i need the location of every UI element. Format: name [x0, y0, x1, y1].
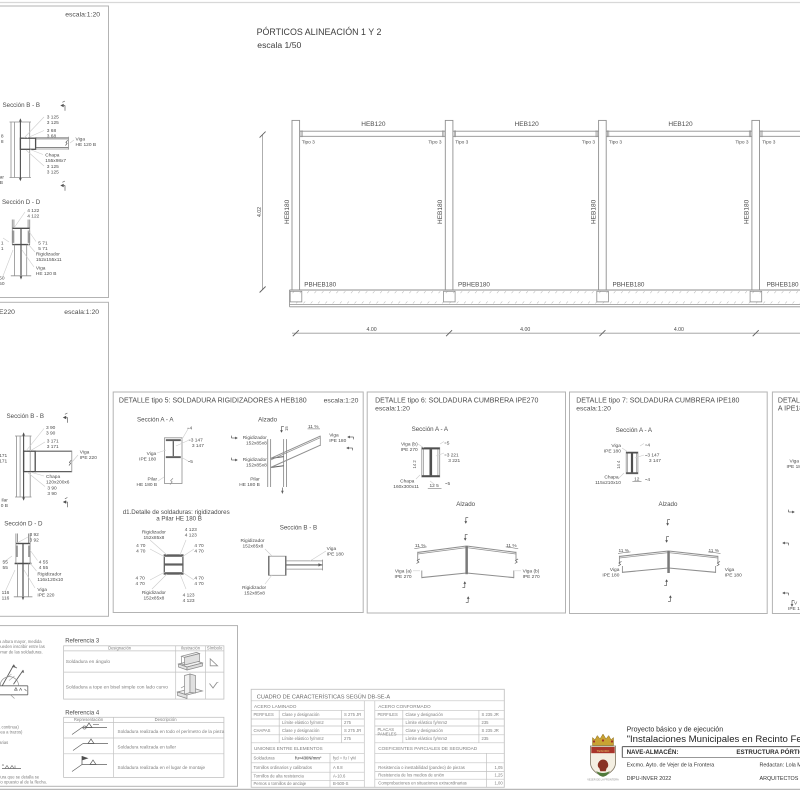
svg-text:Clase y designación: Clase y designación [406, 728, 444, 733]
svg-text:Viga: Viga [147, 451, 157, 457]
svg-text:HEB180: HEB180 [437, 199, 444, 224]
svg-text:Viga: Viga [610, 567, 620, 573]
svg-text:PBHEB180: PBHEB180 [458, 282, 490, 289]
svg-text:HEB120: HEB120 [668, 121, 693, 128]
svg-text:HEB180: HEB180 [284, 199, 291, 224]
svg-text:4 122: 4 122 [27, 208, 39, 214]
svg-text:S 275 JR: S 275 JR [344, 728, 361, 733]
svg-text:COEFICIENTES PARCIALES DE SEGU: COEFICIENTES PARCIALES DE SEGURIDAD [378, 746, 478, 751]
svg-text:HE 180 B: HE 180 B [137, 482, 158, 488]
svg-text:Sección A - A: Sección A - A [137, 416, 174, 423]
svg-text:4 55: 4 55 [39, 565, 49, 571]
svg-text:Tipo 3: Tipo 3 [302, 139, 315, 145]
svg-text:PBHEB180: PBHEB180 [304, 282, 336, 289]
svg-text:escala:1:20: escala:1:20 [375, 405, 410, 412]
svg-text:3 125: 3 125 [47, 115, 59, 121]
svg-text:116: 116 [2, 590, 10, 596]
svg-text:Rigidizador: Rigidizador [243, 435, 267, 441]
svg-text:PBHEB180: PBHEB180 [767, 282, 799, 289]
svg-text:Viga: Viga [76, 136, 86, 142]
svg-text:4: 4 [647, 442, 650, 448]
svg-text:171: 171 [0, 458, 8, 464]
svg-text:Chapa: Chapa [45, 153, 59, 159]
svg-text:PÓRTICOS ALINEACIÓN 1 Y 2: PÓRTICOS ALINEACIÓN 1 Y 2 [257, 27, 382, 37]
svg-text:S 235 JR: S 235 JR [482, 712, 499, 717]
svg-text:3 171: 3 171 [47, 444, 59, 450]
svg-text:IPE 270: IPE 270 [401, 447, 418, 453]
svg-text:8: 8 [1, 134, 4, 140]
svg-text:Viga: Viga [36, 266, 46, 272]
svg-text:3 68: 3 68 [47, 128, 57, 134]
svg-text:PERFILES: PERFILES [378, 712, 398, 717]
svg-text:Redactan: Lola Mar: Redactan: Lola Mar [760, 762, 800, 768]
svg-text:IPE 180: IPE 180 [725, 572, 742, 578]
svg-text:Tipo 3: Tipo 3 [609, 139, 622, 145]
svg-text:Sección D - D: Sección D - D [4, 521, 43, 528]
svg-text:ESTRUCTURA PÓRTICOS: ESTRUCTURA PÓRTICOS [736, 748, 800, 756]
svg-text:Viga: Viga [37, 587, 47, 593]
svg-text:ACERO CONFORMADO: ACERO CONFORMADO [378, 704, 431, 709]
svg-text:IPE 270: IPE 270 [523, 574, 540, 580]
svg-text:escala 1/50: escala 1/50 [257, 40, 301, 50]
svg-text:DETALLE tipo 6: SOLDADURA CUMB: DETALLE tipo 6: SOLDADURA CUMBRERA IPE27… [375, 398, 538, 405]
svg-text:Tornillos de alta resistencia: Tornillos de alta resistencia [254, 774, 305, 779]
svg-text:Viga (b): Viga (b) [523, 568, 540, 574]
svg-text:120x200x6: 120x200x6 [46, 479, 70, 485]
svg-text:IPE 180: IPE 180 [327, 552, 344, 558]
svg-text:3 90: 3 90 [47, 491, 57, 497]
svg-text:Tipo 3: Tipo 3 [735, 139, 748, 145]
svg-text:Rigidizador: Rigidizador [142, 590, 166, 596]
svg-text:Referencia 3: Referencia 3 [65, 639, 100, 645]
svg-text:Tipo 3: Tipo 3 [455, 139, 468, 145]
svg-text:Límite elástico fy/mm2: Límite elástico fy/mm2 [406, 736, 448, 741]
svg-text:IPE 180: IPE 180 [139, 456, 156, 462]
svg-text:3 221: 3 221 [448, 458, 460, 464]
svg-text:DETALLE tipo 7: SOLDADURA CUMB: DETALLE tipo 7: SOLDADURA CUMBRERA IPE18… [576, 398, 739, 405]
svg-text:Designación: Designación [108, 646, 132, 651]
svg-text:275: 275 [344, 720, 352, 725]
svg-text:Sección B - B: Sección B - B [280, 525, 318, 532]
svg-text:escala:1:20: escala:1:20 [324, 398, 359, 405]
svg-text:Soldadura realizada en todo el: Soldadura realizada en todo el perímetro… [118, 729, 225, 734]
svg-text:A 8.8: A 8.8 [333, 765, 343, 770]
svg-text:Soldaduras: Soldaduras [254, 756, 275, 761]
svg-text:3 147: 3 147 [649, 458, 661, 464]
svg-text:Tipo 3: Tipo 3 [762, 139, 775, 145]
svg-text:50: 50 [0, 276, 5, 282]
svg-text:A IPE18: A IPE18 [778, 405, 800, 412]
svg-text:Tipo 3: Tipo 3 [582, 139, 595, 145]
svg-text:Representación: Representación [74, 717, 104, 722]
svg-text:3 125: 3 125 [47, 120, 59, 126]
svg-text:IPE 220: IPE 220 [80, 455, 97, 461]
svg-text:HE 180 B: HE 180 B [239, 482, 260, 488]
svg-text:PBHEB180: PBHEB180 [613, 282, 645, 289]
svg-text:1,05: 1,05 [495, 765, 504, 770]
svg-text:3 90: 3 90 [46, 425, 56, 431]
svg-text:4 55: 4 55 [39, 560, 49, 566]
svg-text:Pilar: Pilar [147, 477, 157, 483]
svg-text:155x98x7: 155x98x7 [45, 158, 66, 164]
svg-text:Ilustración: Ilustración [181, 646, 201, 651]
svg-text:escala:1:20: escala:1:20 [65, 12, 100, 19]
svg-text:a Pilar HE 180 B: a Pilar HE 180 B [156, 515, 202, 522]
svg-text:1,00: 1,00 [495, 781, 504, 786]
svg-text:do opuesto al de la flecha.: do opuesto al de la flecha. [0, 780, 47, 785]
svg-text:Símbolo: Símbolo [207, 646, 223, 651]
svg-text:152x85x8: 152x85x8 [246, 440, 267, 446]
svg-text:fyd = fu / γM: fyd = fu / γM [333, 756, 356, 761]
svg-text:Pernos o tornillos de anclaje: Pernos o tornillos de anclaje [254, 781, 307, 786]
svg-text:escala:1:20: escala:1:20 [64, 309, 99, 316]
svg-text:PANELES: PANELES [378, 732, 397, 737]
svg-text:ar: ar [0, 175, 4, 181]
svg-text:HEB120: HEB120 [361, 121, 386, 128]
svg-text:escala:1:20: escala:1:20 [576, 405, 611, 412]
svg-text:Chapa: Chapa [400, 479, 414, 485]
svg-text:5 71: 5 71 [38, 246, 48, 252]
svg-text:4 70: 4 70 [194, 543, 204, 549]
svg-text:B-500-S: B-500-S [333, 781, 349, 786]
svg-text:1: 1 [1, 246, 4, 252]
svg-text:VEJER DE LA FRONTERA: VEJER DE LA FRONTERA [587, 778, 619, 782]
svg-text:Rigidizador: Rigidizador [37, 572, 61, 578]
svg-text:Descripción: Descripción [155, 717, 178, 722]
svg-text:4: 4 [190, 426, 193, 432]
svg-text:3 92: 3 92 [30, 538, 40, 544]
svg-text:ARQUITECTOS: ARQUITECTOS [760, 776, 799, 782]
svg-text:ilar: ilar [1, 498, 8, 504]
svg-text:TESORO: TESORO [597, 749, 610, 753]
svg-text:14 2: 14 2 [412, 460, 417, 469]
svg-text:Rigidizador: Rigidizador [243, 457, 267, 463]
svg-text:Viga: Viga [790, 459, 800, 465]
svg-text:Pilar: Pilar [250, 477, 260, 483]
svg-text:235: 235 [482, 720, 490, 725]
svg-text:Rigidizador: Rigidizador [142, 529, 166, 535]
svg-text:DETALL: DETALL [778, 398, 800, 405]
svg-text:IPE 1: IPE 1 [788, 606, 800, 612]
svg-text:Soldadura a tope en bisel simp: Soldadura a tope en bisel simple con lad… [66, 685, 168, 691]
svg-text:NAVE-ALMACÉN:: NAVE-ALMACÉN: [627, 748, 679, 756]
svg-text:3 171: 3 171 [47, 438, 59, 444]
svg-text:IPE 180: IPE 180 [329, 438, 346, 444]
svg-text:4 123: 4 123 [185, 527, 197, 533]
svg-text:Resistencia de los medios de u: Resistencia de los medios de unión [378, 773, 445, 778]
svg-text:5: 5 [190, 459, 193, 465]
svg-text:Viga: Viga [327, 546, 337, 552]
svg-text:Clase y designación: Clase y designación [282, 728, 320, 733]
svg-text:Rigidizador: Rigidizador [242, 585, 266, 591]
svg-text:Límite elástico fy/mm2: Límite elástico fy/mm2 [282, 720, 324, 725]
svg-text:5: 5 [447, 440, 450, 446]
svg-text:HEB180: HEB180 [590, 199, 597, 224]
svg-text:Viga (b): Viga (b) [401, 442, 418, 448]
svg-text:Sección B - B: Sección B - B [3, 102, 41, 109]
svg-text:152x85x8: 152x85x8 [246, 463, 267, 469]
svg-text:Chapa: Chapa [604, 475, 618, 481]
svg-text:4 123: 4 123 [183, 598, 195, 604]
svg-text:Clase y designación: Clase y designación [406, 712, 444, 717]
svg-text:S 275 JR: S 275 JR [344, 712, 361, 717]
svg-text:HEB120: HEB120 [515, 121, 540, 128]
svg-text:115x210x10: 115x210x10 [595, 480, 621, 486]
svg-text:E220: E220 [0, 309, 15, 316]
svg-text:Sección B - B: Sección B - B [7, 413, 45, 420]
svg-text:Comprobaciones en situaciones: Comprobaciones en situaciones extraordin… [378, 781, 466, 786]
svg-text:Chapa: Chapa [46, 474, 60, 480]
svg-text:omar de las soldaduras.: omar de las soldaduras. [0, 649, 43, 654]
svg-text:14 4: 14 4 [616, 460, 621, 469]
svg-text:Tipo 3: Tipo 3 [428, 139, 441, 145]
svg-text:Rigidizador: Rigidizador [241, 538, 265, 544]
svg-text:"Instalaciones Municipales en: "Instalaciones Municipales en Recinto Fe… [627, 734, 800, 745]
svg-text:S 235 JR: S 235 JR [482, 728, 499, 733]
svg-text:3 221: 3 221 [447, 452, 459, 458]
svg-text:Sección D - D: Sección D - D [2, 199, 41, 206]
svg-text:nea a trazos): nea a trazos) [0, 730, 23, 735]
svg-text:3 125: 3 125 [47, 170, 59, 176]
svg-text:3 90: 3 90 [46, 430, 56, 436]
svg-text:UNIONES ENTRE ELEMENTOS: UNIONES ENTRE ELEMENTOS [254, 746, 323, 751]
svg-text:Resistencia o inestabilidad (p: Resistencia o inestabilidad (pandeo) de … [378, 765, 465, 770]
svg-text:tarias: tarias [0, 740, 8, 745]
svg-text:55: 55 [3, 565, 9, 571]
svg-text:Soldadura realizada en el luga: Soldadura realizada en el lugar de monta… [118, 765, 206, 770]
svg-text:Tornillos ordinarios y calibra: Tornillos ordinarios y calibrados [254, 765, 312, 770]
svg-text:0 B: 0 B [1, 503, 8, 509]
svg-text:CHAPAS: CHAPAS [254, 728, 271, 733]
svg-text:Referencia 4: Referencia 4 [65, 710, 100, 716]
svg-text:5: 5 [448, 481, 451, 487]
svg-text:Clase y designación: Clase y designación [282, 712, 320, 717]
svg-text:Sección A - A: Sección A - A [412, 426, 449, 433]
svg-text:IPE 180: IPE 180 [787, 464, 800, 470]
svg-text:5 71: 5 71 [38, 241, 48, 247]
svg-text:4 70: 4 70 [136, 581, 146, 587]
svg-text:IPE 180: IPE 180 [602, 572, 619, 578]
svg-text:4 123: 4 123 [185, 533, 197, 539]
svg-text:4 122: 4 122 [27, 214, 39, 220]
svg-text:3 147: 3 147 [647, 453, 659, 459]
svg-text:3 147: 3 147 [192, 443, 204, 449]
svg-text:3 147: 3 147 [191, 438, 203, 444]
svg-text:152x85x8: 152x85x8 [144, 535, 165, 541]
svg-text:DETALLE tipo 5: SOLDADURA RIGI: DETALLE tipo 5: SOLDADURA RIGIDIZADORES … [119, 398, 307, 405]
svg-text:HE 120 B: HE 120 B [76, 142, 97, 148]
svg-text:4 70: 4 70 [194, 576, 204, 582]
svg-text:CUADRO DE CARACTERÍSTICAS SEGÚ: CUADRO DE CARACTERÍSTICAS SEGÚN DB-SE-A [257, 693, 391, 700]
svg-text:HEB180: HEB180 [744, 199, 751, 224]
svg-text:IPE 220: IPE 220 [37, 593, 54, 599]
svg-text:Límite elástico fy/mm2: Límite elástico fy/mm2 [282, 736, 324, 741]
svg-text:Viga: Viga [329, 433, 339, 439]
svg-text:Soldadura realizada en taller: Soldadura realizada en taller [118, 745, 177, 750]
svg-text:4.00: 4.00 [367, 327, 377, 333]
svg-text:Límite elástico fy/mm2: Límite elástico fy/mm2 [406, 720, 448, 725]
svg-text:116x120x10: 116x120x10 [37, 577, 63, 583]
svg-text:50: 50 [0, 281, 5, 287]
svg-text:Viga: Viga [611, 443, 621, 449]
svg-text:DIPU-INVER 2022: DIPU-INVER 2022 [627, 776, 672, 782]
svg-text:3 90: 3 90 [47, 485, 57, 491]
svg-text:3 125: 3 125 [47, 164, 59, 170]
svg-text:275: 275 [344, 736, 352, 741]
svg-text:116: 116 [2, 596, 10, 602]
svg-text:8: 8 [1, 139, 4, 145]
svg-text:235: 235 [482, 736, 490, 741]
svg-text:55: 55 [3, 560, 9, 566]
svg-text:Alzado: Alzado [659, 501, 678, 508]
svg-text:152x85x8: 152x85x8 [144, 595, 165, 601]
svg-text:4 70: 4 70 [136, 543, 146, 549]
svg-text:A-10.6: A-10.6 [333, 774, 346, 779]
svg-text:152x85x8: 152x85x8 [244, 590, 265, 596]
svg-text:171: 171 [0, 453, 8, 459]
svg-text:Viga: Viga [725, 567, 735, 573]
svg-text:3 92: 3 92 [30, 532, 40, 538]
svg-text:15: 15 [284, 426, 289, 431]
svg-text:HE 120 B: HE 120 B [36, 271, 57, 277]
svg-text:4 123: 4 123 [183, 592, 195, 598]
svg-text:4 70: 4 70 [136, 576, 146, 582]
svg-text:Sección A - A: Sección A - A [616, 427, 653, 434]
svg-text:4 70: 4 70 [136, 548, 146, 554]
svg-text:PERFILES: PERFILES [254, 712, 274, 717]
svg-text:4 70: 4 70 [194, 548, 204, 554]
svg-text:152x85x8: 152x85x8 [243, 544, 264, 550]
svg-text:4.00: 4.00 [674, 327, 684, 333]
svg-text:Viga (a): Viga (a) [395, 568, 412, 574]
svg-text:Excmo. Ayto. de Vejer de la Fr: Excmo. Ayto. de Vejer de la Frontera [627, 762, 715, 768]
svg-text:Viga: Viga [80, 450, 90, 456]
svg-text:1,25: 1,25 [495, 773, 504, 778]
svg-text:fu=430N/mm²: fu=430N/mm² [295, 756, 322, 761]
svg-text:B: B [0, 180, 3, 186]
svg-text:3 68: 3 68 [47, 133, 57, 139]
svg-text:Soldadura en ángulo: Soldadura en ángulo [66, 659, 111, 665]
svg-text:152x155x11: 152x155x11 [36, 257, 62, 263]
svg-text:4.00: 4.00 [520, 327, 530, 333]
svg-text:4: 4 [647, 477, 650, 483]
svg-text:IPE 270: IPE 270 [395, 574, 412, 580]
svg-text:IPE 180: IPE 180 [604, 449, 621, 455]
svg-text:Rigidizador: Rigidizador [36, 252, 60, 258]
svg-text:Alzado: Alzado [456, 501, 475, 508]
svg-text:Proyecto básico y de ejecución: Proyecto básico y de ejecución [627, 726, 724, 733]
svg-text:4.02: 4.02 [257, 207, 263, 217]
svg-text:160x300x11: 160x300x11 [393, 484, 419, 490]
svg-text:Alzado: Alzado [258, 416, 277, 423]
svg-text:ACERO LAMINADO: ACERO LAMINADO [254, 704, 297, 709]
svg-text:1: 1 [1, 241, 4, 247]
svg-text:4 70: 4 70 [194, 581, 204, 587]
